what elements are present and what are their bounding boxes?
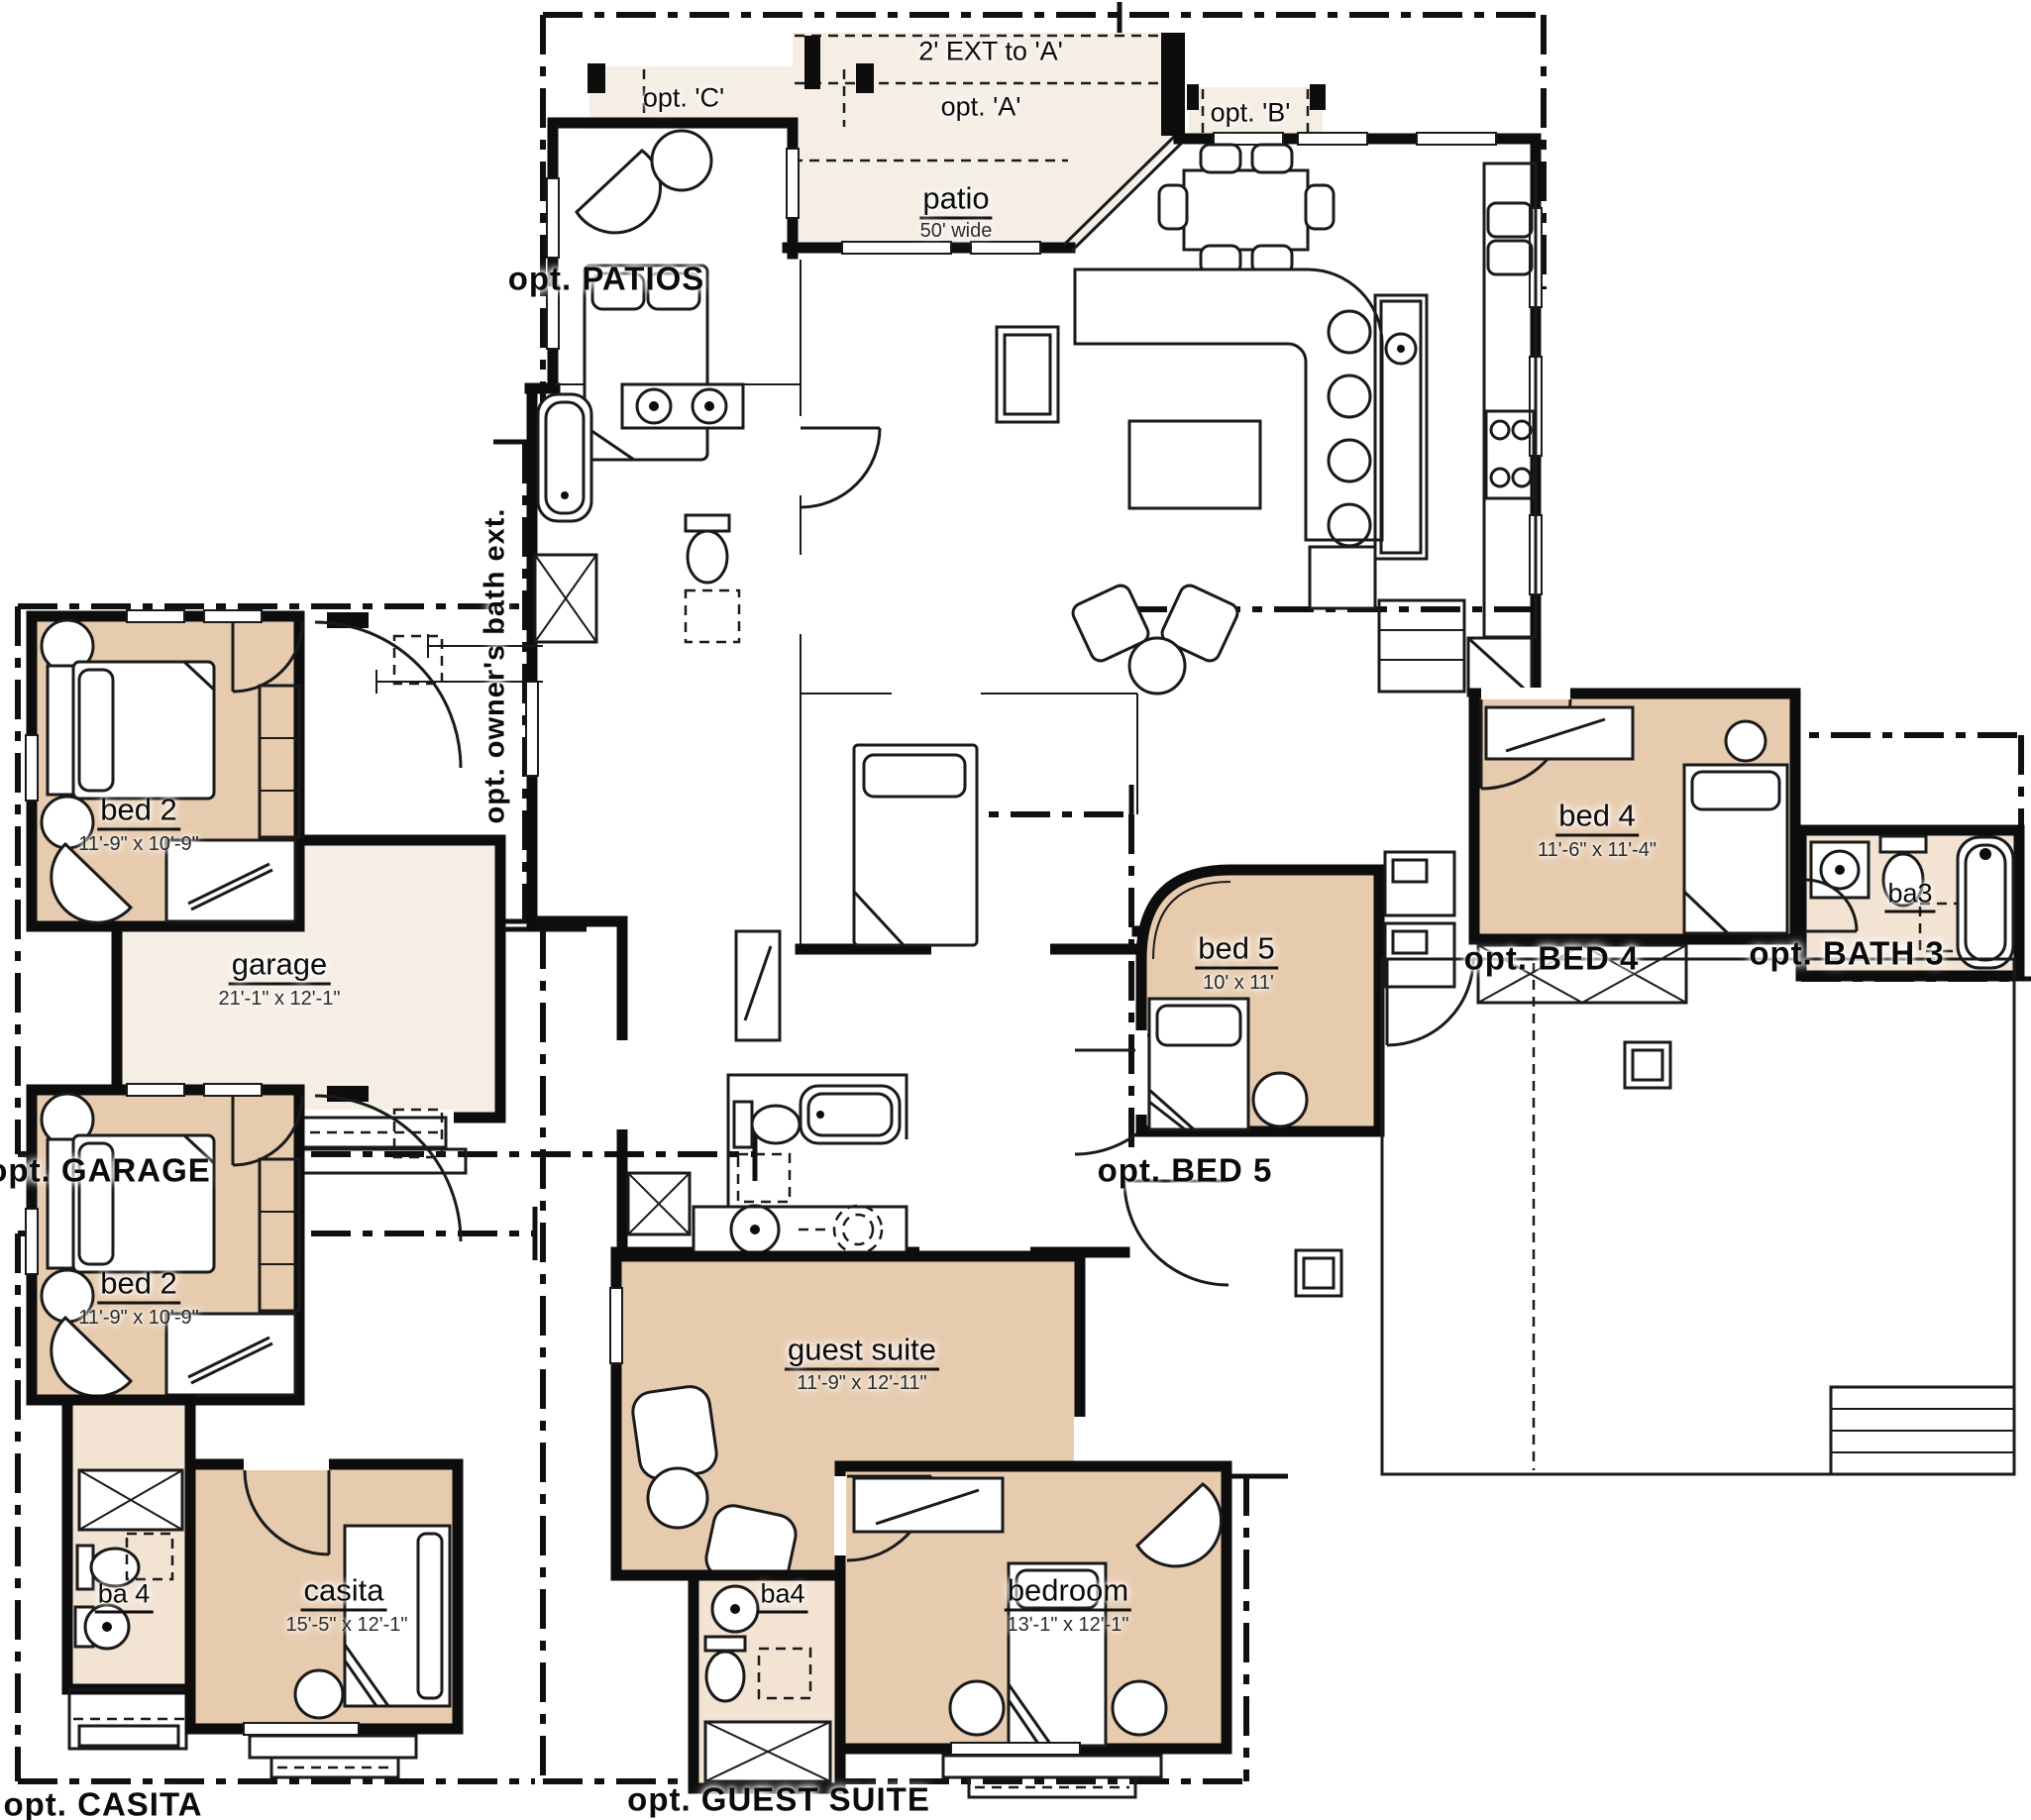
bed2-garage-dim: 11'-9" x 10'-9" xyxy=(78,834,199,854)
toilet xyxy=(752,1106,800,1143)
toilet-tank xyxy=(705,1637,745,1651)
toilet-tank xyxy=(686,515,729,531)
dining-chair xyxy=(1159,185,1187,229)
pillow xyxy=(79,670,113,791)
ext-to-a-label: 2' EXT to 'A' xyxy=(918,39,1063,65)
corner-chair xyxy=(577,151,661,233)
opt-bed5-label: opt. BED 5 xyxy=(1098,1154,1273,1187)
pillow xyxy=(1692,772,1779,809)
bed5-room xyxy=(1135,852,1454,1131)
steps xyxy=(250,1736,416,1758)
pillow xyxy=(1157,1006,1240,1045)
floor-plan-drawing xyxy=(0,0,2031,1820)
garage-name: garage xyxy=(229,949,331,986)
bed5-dim: 10' x 11' xyxy=(1203,973,1274,993)
nightstand xyxy=(295,1670,343,1718)
pantry xyxy=(1379,600,1464,692)
opt-bath3-label: opt. BATH 3 xyxy=(1749,937,1944,970)
round-table xyxy=(652,131,711,190)
ba4-casita-name: ba 4 xyxy=(95,1581,154,1614)
garage-dim: 21'-1" x 12'-1" xyxy=(218,989,340,1009)
toilet-tank xyxy=(1880,836,1926,852)
toilet xyxy=(688,531,727,583)
bed2-casita-name: bed 2 xyxy=(97,1268,180,1305)
nightstand xyxy=(950,1681,1004,1735)
bed2-garage-name: bed 2 xyxy=(97,795,180,831)
bedroom-name: bedroom xyxy=(1005,1575,1131,1612)
bed4-dim: 11'-6" x 11'-4" xyxy=(1538,840,1657,860)
bed4-name: bed 4 xyxy=(1555,801,1639,837)
pillow xyxy=(864,755,965,797)
opt-guest-suite-label: opt. GUEST SUITE xyxy=(627,1783,930,1816)
bed2-casita-dim: 11'-9" x 10'-9" xyxy=(78,1308,199,1328)
opt-patios-label: opt. PATIOS xyxy=(508,263,705,295)
dining-chair xyxy=(1306,185,1334,229)
dining-chair xyxy=(1252,145,1292,172)
casita-name: casita xyxy=(301,1575,387,1612)
pillow xyxy=(418,1534,442,1698)
ba3-name: ba3 xyxy=(1884,881,1935,913)
opt-b-label: opt. 'B' xyxy=(1211,100,1291,127)
floor-plan-canvas: 2' EXT to 'A' opt. 'C' opt. 'A' opt. 'B'… xyxy=(0,0,2031,1820)
opt-c-label: opt. 'C' xyxy=(643,85,724,112)
rear-patio xyxy=(1296,959,2014,1474)
toilet xyxy=(706,1652,744,1701)
opt-casita-label: opt. CASITA xyxy=(3,1788,202,1820)
ottoman xyxy=(1310,547,1375,608)
opt-garage-label: opt. GARAGE xyxy=(0,1154,211,1187)
closet xyxy=(1385,852,1454,915)
guest-suite-name: guest suite xyxy=(785,1335,939,1371)
bed5-name: bed 5 xyxy=(1195,933,1278,970)
patio-dim: 50' wide xyxy=(920,221,993,241)
closet xyxy=(1385,923,1454,987)
middle-rooms xyxy=(628,745,977,1253)
casita-dim: 15'-5" x 12'-1" xyxy=(285,1615,407,1635)
coffee-table xyxy=(1129,421,1260,508)
opt-bed4-label: opt. BED 4 xyxy=(1464,942,1640,975)
round-table xyxy=(1129,638,1185,694)
ba4-guest-name: ba4 xyxy=(757,1581,807,1614)
patio-name: patio xyxy=(919,183,992,220)
steps xyxy=(943,1756,1161,1777)
dining-chair xyxy=(1201,145,1240,172)
living-room xyxy=(997,269,1382,694)
toilet-tank xyxy=(734,1102,752,1147)
bedroom-dim: 13'-1" x 12'-1" xyxy=(1007,1615,1128,1635)
owners-bath-ext-label: opt. owner's bath ext. xyxy=(481,508,510,824)
round-table xyxy=(648,1468,707,1528)
round-table xyxy=(1253,1073,1307,1126)
round-table xyxy=(1726,721,1765,761)
dining-nook xyxy=(1159,133,1536,273)
armchair xyxy=(630,1384,718,1481)
nightstand xyxy=(1113,1681,1166,1735)
dining-table xyxy=(1184,170,1308,250)
guest-suite-dim: 11'-9" x 12'-11" xyxy=(797,1373,926,1393)
opt-a-label: opt. 'A' xyxy=(941,94,1021,121)
